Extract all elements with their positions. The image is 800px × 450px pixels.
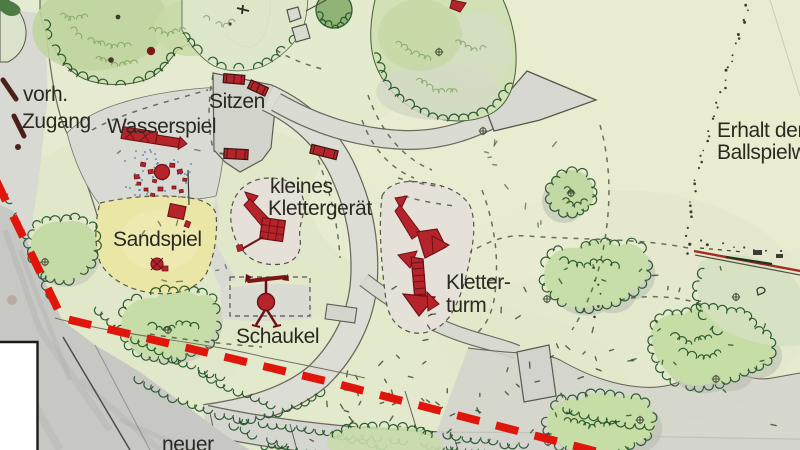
svg-text:Ballspielwi: Ballspielwi — [717, 141, 800, 164]
svg-text:neuer: neuer — [162, 433, 214, 450]
svg-text:Sandspiel: Sandspiel — [113, 228, 202, 251]
svg-text:Erhalt der: Erhalt der — [717, 119, 800, 142]
svg-text:Kletter-: Kletter- — [446, 271, 511, 294]
svg-text:Wasserspiel: Wasserspiel — [107, 115, 216, 138]
svg-text:Zugang: Zugang — [22, 110, 91, 133]
svg-text:Klettergerät: Klettergerät — [268, 197, 372, 220]
svg-text:vorh.: vorh. — [23, 83, 68, 106]
svg-text:kleines: kleines — [270, 175, 333, 198]
svg-text:turm: turm — [446, 294, 486, 317]
svg-text:Sitzen: Sitzen — [209, 90, 265, 113]
svg-text:Schaukel: Schaukel — [236, 325, 319, 348]
